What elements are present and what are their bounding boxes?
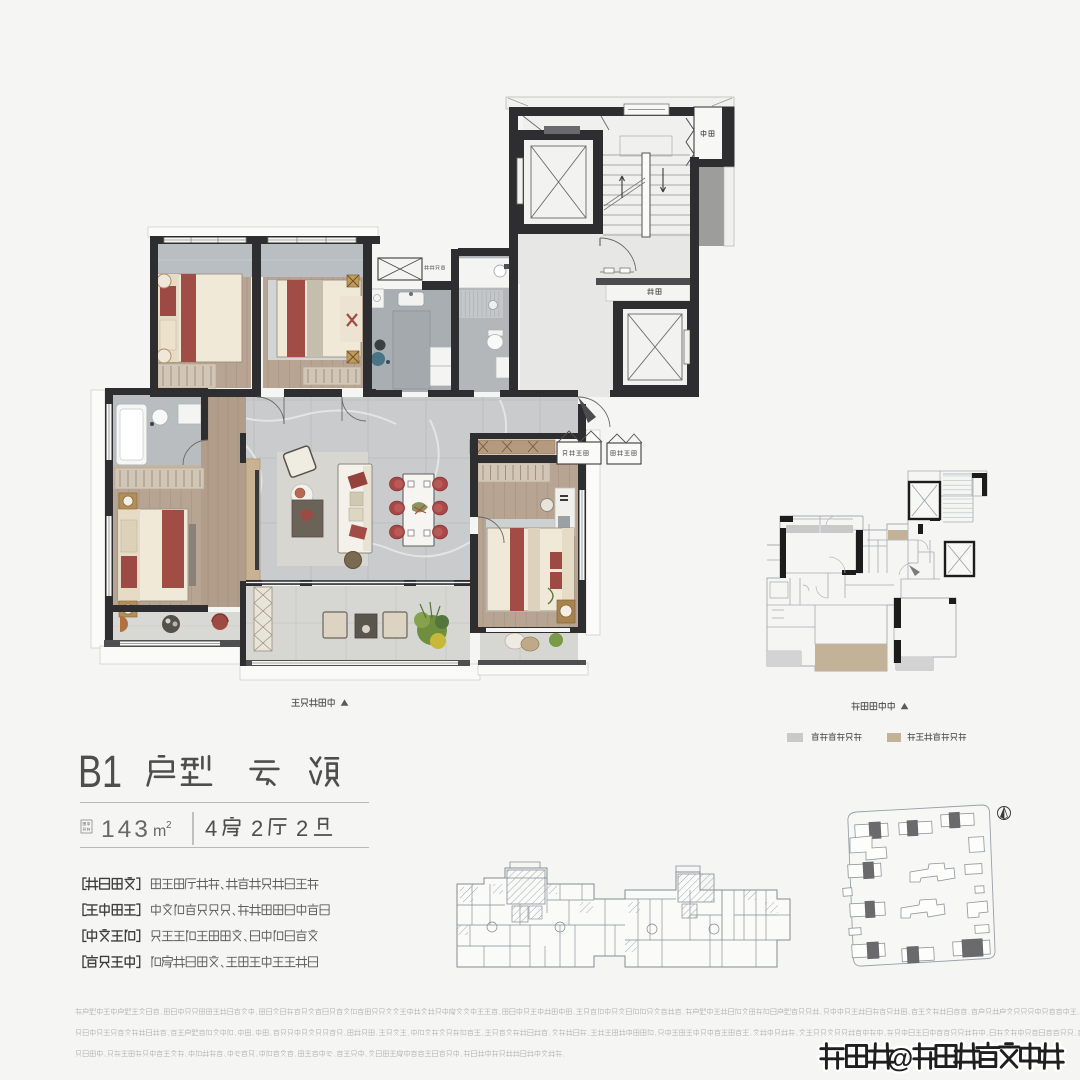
svg-text:2: 2 <box>251 816 263 841</box>
svg-text:2: 2 <box>166 820 172 831</box>
svg-text:4: 4 <box>205 816 217 841</box>
svg-text:B1: B1 <box>78 746 122 797</box>
svg-text:@: @ <box>887 1043 913 1073</box>
svg-text:m: m <box>153 823 166 840</box>
svg-text:2: 2 <box>296 816 308 841</box>
svg-text:143: 143 <box>101 816 151 843</box>
